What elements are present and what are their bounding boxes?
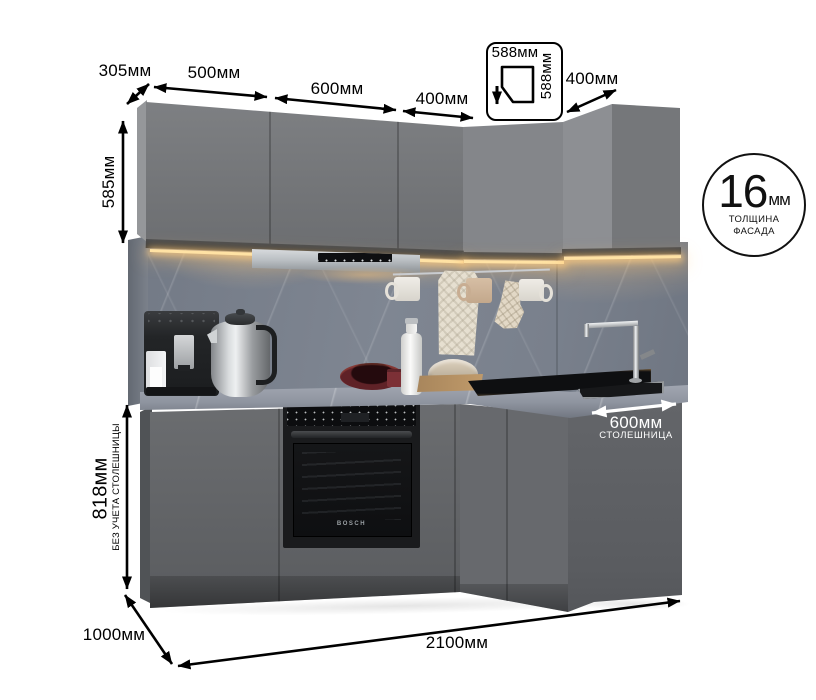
dim-label-total-width: 2100мм (417, 634, 497, 652)
dim-caption-countertop: СТОЛЕШНИЦА (589, 431, 683, 441)
dim-label-total-depth: 1000мм (74, 626, 154, 644)
dim-label-corner-width: 588мм (487, 45, 543, 61)
dim-note-base-height: БЕЗ УЧЕТА СТОЛЕШНИЦЫ (112, 417, 122, 557)
dim-label-upper-height: 585мм (100, 147, 118, 217)
arrow-top-depth (127, 84, 149, 104)
corner-cabinet-plan-icon (502, 67, 533, 102)
dim-label-base-height: 818мм (91, 444, 112, 534)
dim-label-upper-width-3: 400мм (407, 90, 477, 108)
arrow-upper-width-3 (403, 111, 473, 118)
kitchen-dimensions-diagram: BOSCH (0, 0, 816, 700)
dim-label-right-upper-width: 400мм (557, 70, 627, 88)
arrow-upper-width-1 (154, 87, 267, 97)
arrow-countertop-depth (592, 404, 676, 413)
arrow-right-upper-width (567, 90, 616, 112)
arrow-upper-width-2 (275, 98, 396, 110)
dim-label-upper-width-1: 500мм (179, 64, 249, 82)
dim-label-corner-depth: 588мм (539, 50, 555, 102)
dim-label-top-depth: 305мм (90, 62, 160, 80)
dim-label-upper-width-2: 600мм (302, 80, 372, 98)
